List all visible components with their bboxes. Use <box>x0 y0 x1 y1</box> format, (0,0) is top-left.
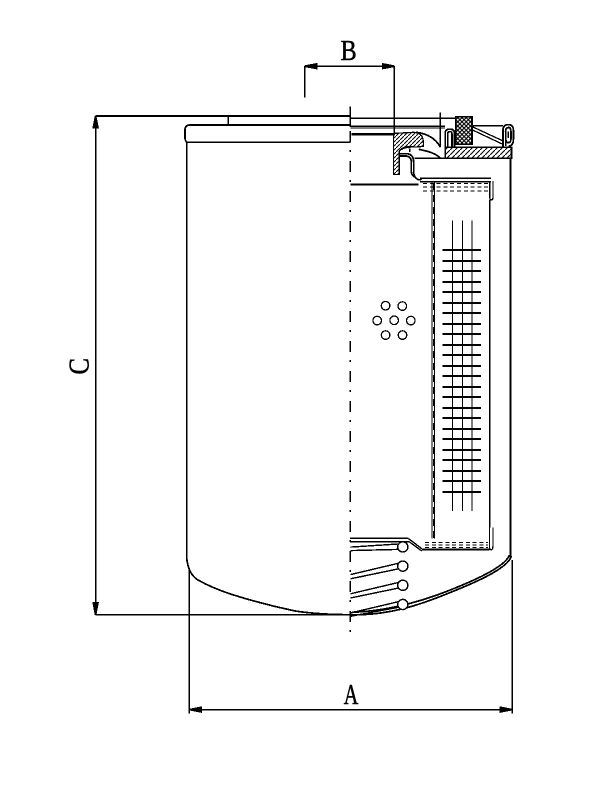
svg-text:B: B <box>341 35 357 66</box>
svg-text:A: A <box>344 680 359 711</box>
svg-text:C: C <box>64 358 95 374</box>
